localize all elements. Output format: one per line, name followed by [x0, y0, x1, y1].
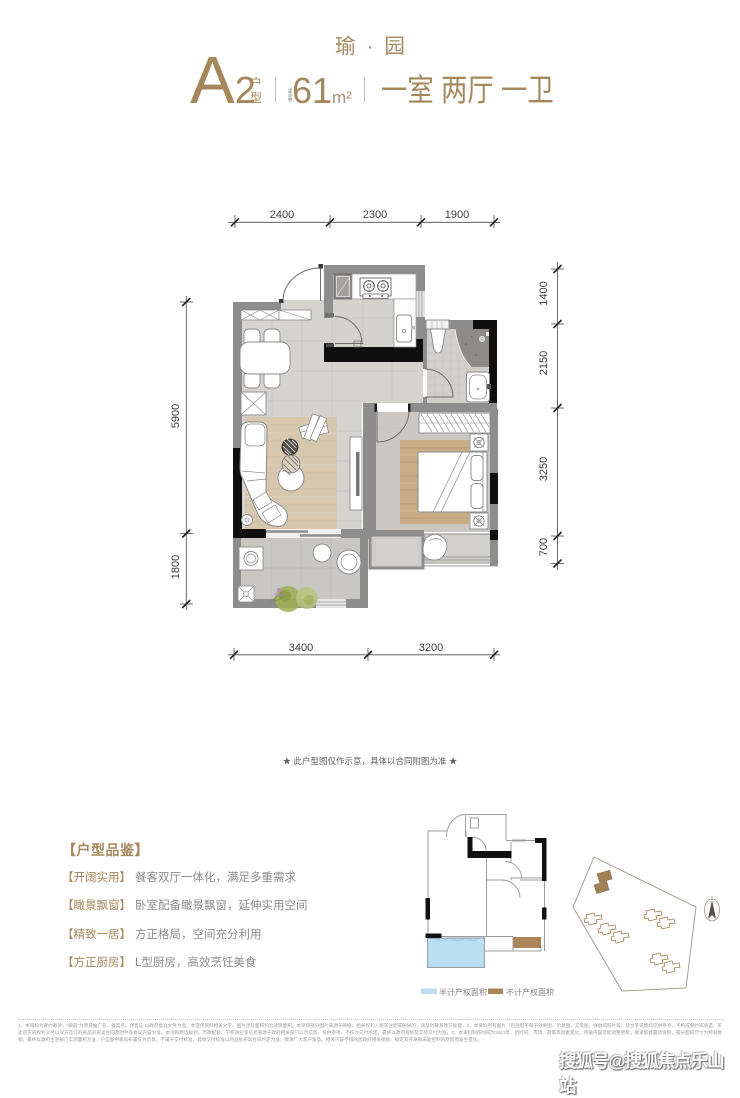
svg-text:2300: 2300: [363, 209, 387, 221]
svg-text:1900: 1900: [445, 209, 469, 221]
svg-text:5900: 5900: [170, 404, 182, 428]
svg-text:3200: 3200: [419, 642, 443, 654]
svg-text:3250: 3250: [538, 457, 550, 481]
svg-text:半计产权面积: 半计产权面积: [439, 987, 487, 997]
svg-text:1800: 1800: [170, 555, 182, 579]
svg-text:2150: 2150: [538, 351, 550, 375]
svg-text:3400: 3400: [289, 642, 313, 654]
svg-text:不计产权面积: 不计产权面积: [506, 987, 554, 997]
svg-text:2400: 2400: [270, 209, 294, 221]
svg-text:700: 700: [538, 538, 550, 556]
svg-text:1400: 1400: [538, 281, 550, 305]
